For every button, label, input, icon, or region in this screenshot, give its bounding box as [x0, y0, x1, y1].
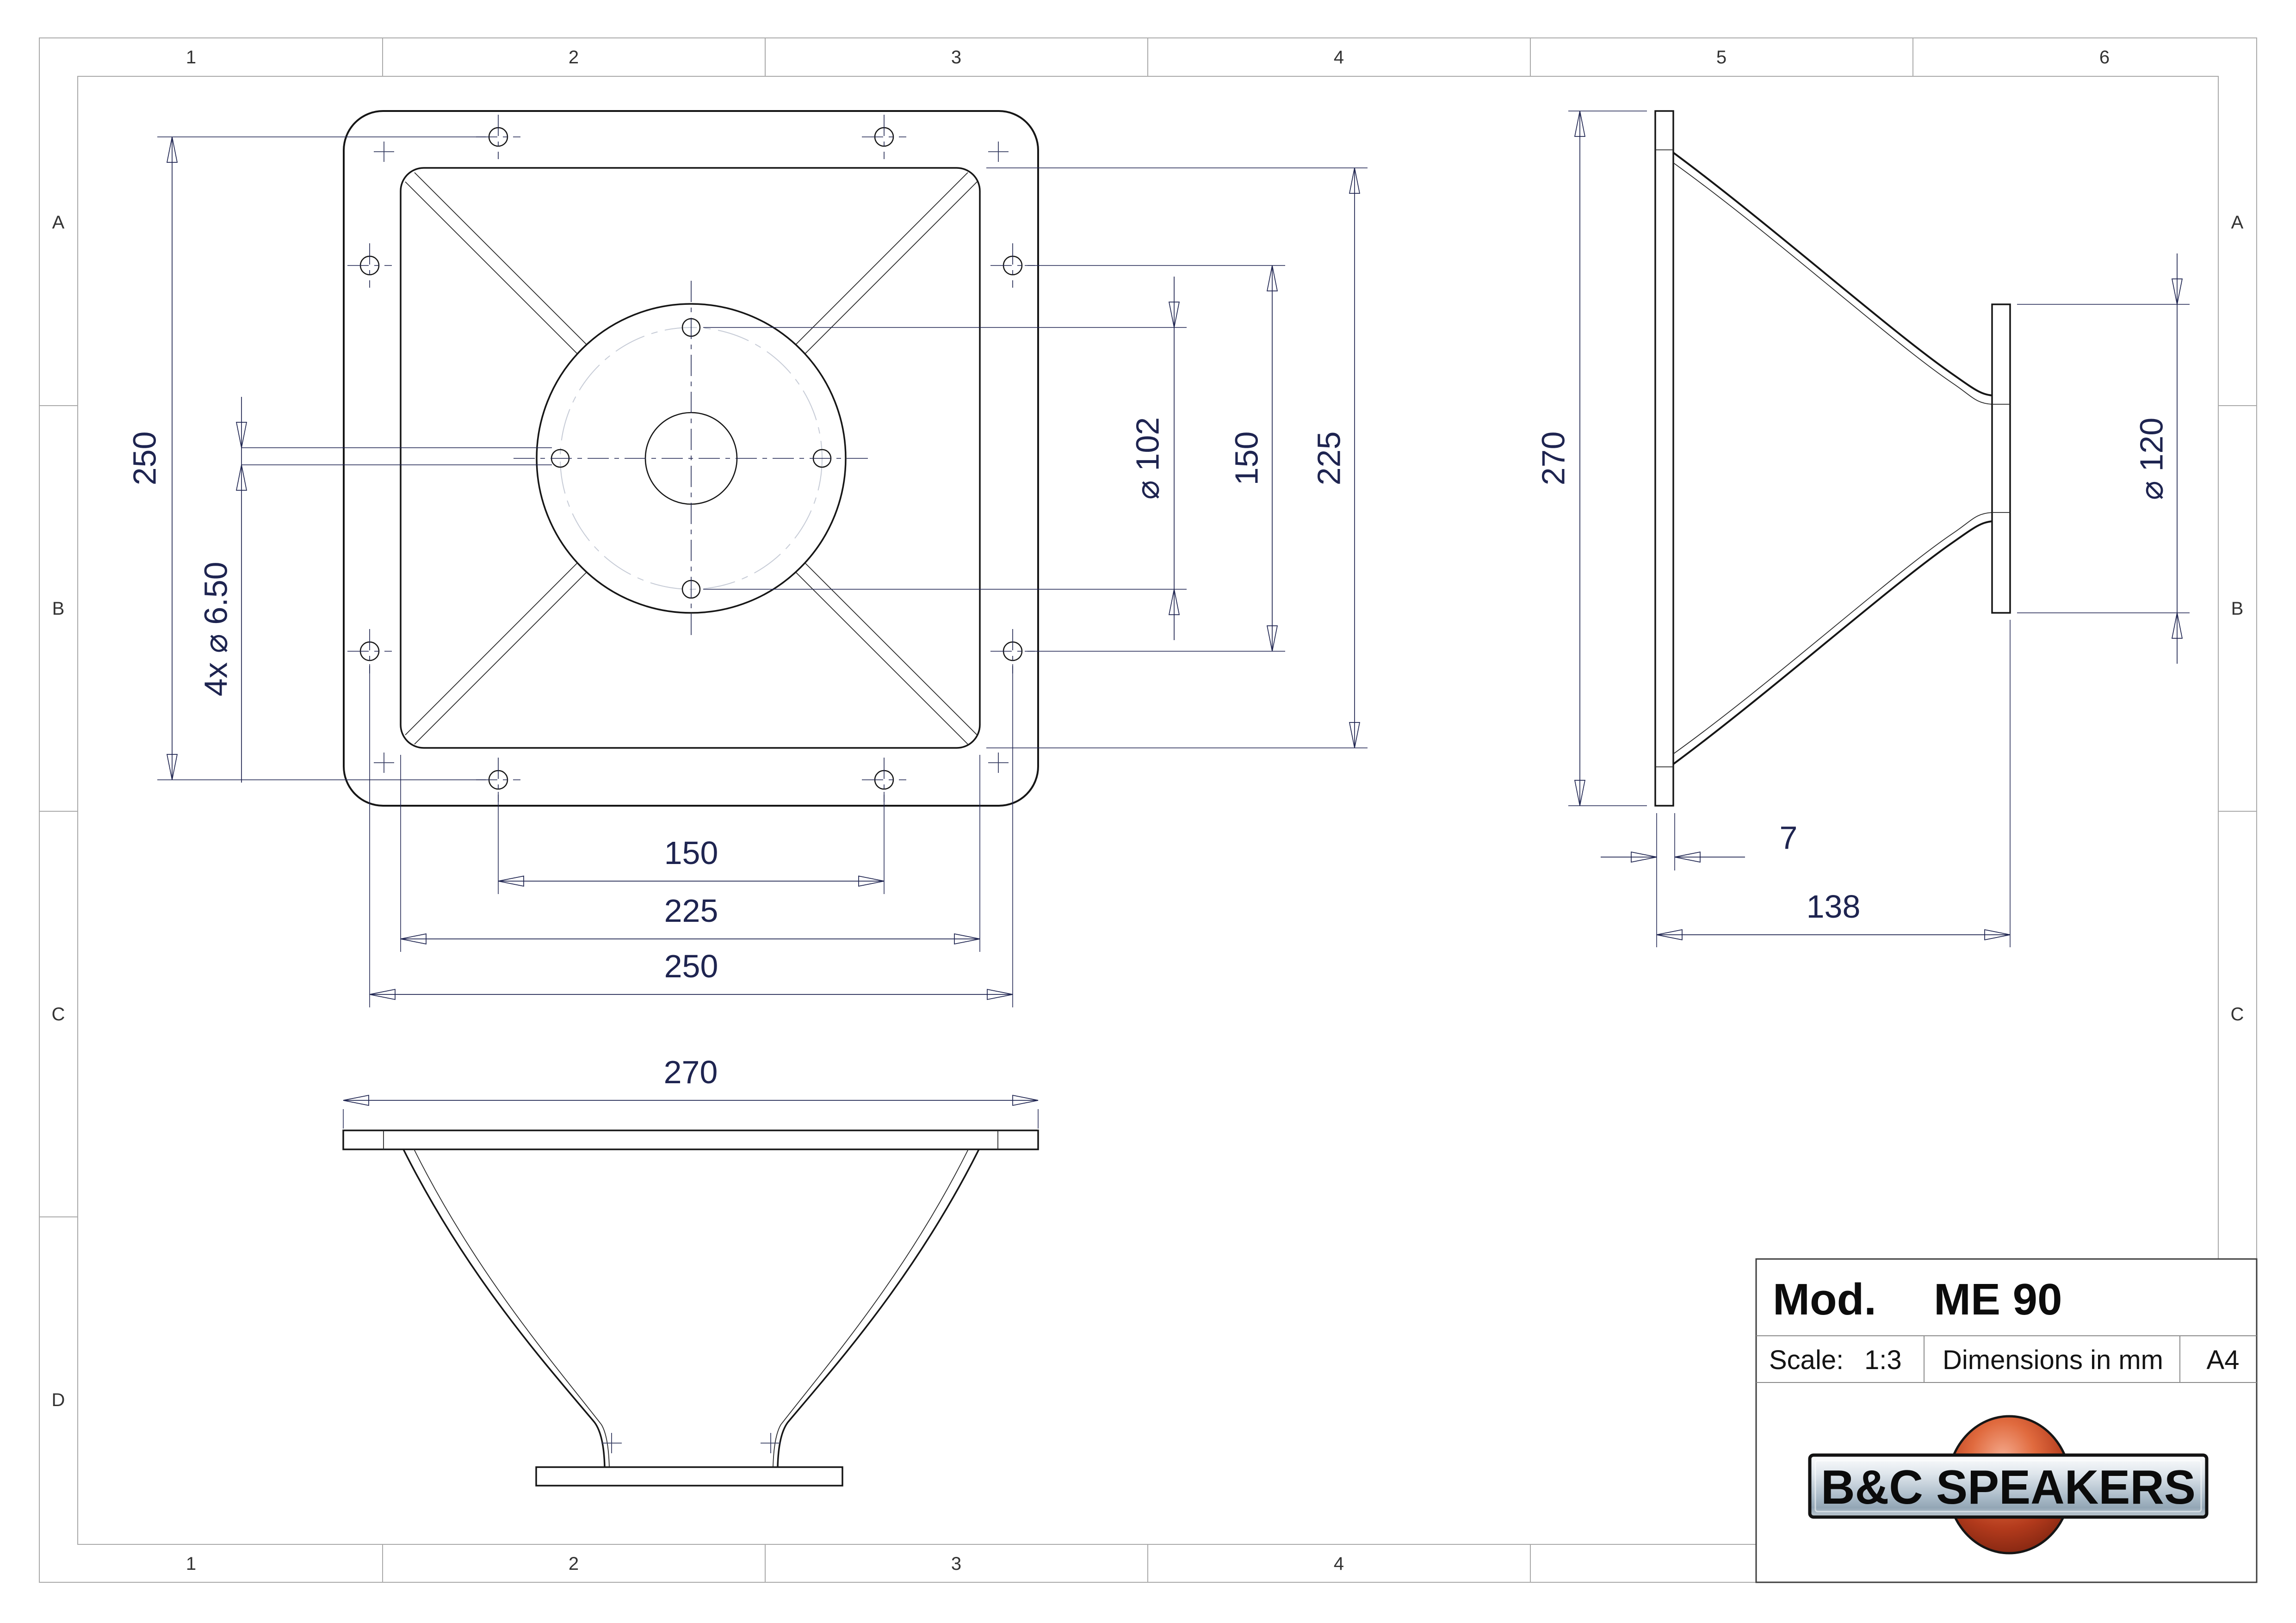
- side-throat-flange: [1992, 304, 2010, 613]
- bottom-bell-outer: [403, 1149, 979, 1467]
- side-dim-depth: 138: [1807, 889, 1861, 925]
- bottom-throat-flange: [536, 1467, 842, 1486]
- grid-col-label-2-bottom: 2: [569, 1554, 579, 1574]
- side-mouth-flange: [1655, 111, 1673, 806]
- title-scale-label: Scale:: [1769, 1345, 1844, 1375]
- bottom-dim-width: 270: [664, 1054, 718, 1090]
- bottom-view: 270: [343, 1054, 1038, 1486]
- logo-wordmark: B&C SPEAKERS: [1821, 1461, 2196, 1514]
- side-view: 270 ⌀ 120 7 138: [1535, 111, 2190, 947]
- grid-row-label-c-right: C: [2231, 1004, 2244, 1024]
- grid-col-label-3-bottom: 3: [951, 1554, 961, 1574]
- grid-row-label-b-right: B: [2231, 599, 2244, 619]
- side-dim-height: 270: [1535, 432, 1571, 486]
- side-dim-flange-thickness: 7: [1780, 820, 1798, 856]
- title-sheet-size: A4: [2207, 1345, 2240, 1375]
- front-dim-bottom-hole-pair: 150: [664, 835, 718, 871]
- grid-col-label-3-top: 3: [951, 47, 961, 68]
- bottom-mouth-flange: [343, 1130, 1038, 1149]
- grid-row-label-c-left: C: [52, 1004, 65, 1024]
- grid-col-label-1-top: 1: [186, 47, 196, 68]
- front-view: 250 4x ⌀ 6.50 ⌀ 102 150 225 150 225 250: [126, 111, 1368, 1007]
- side-bell-inner: [1673, 163, 1992, 754]
- grid-row-label-a-left: A: [52, 212, 65, 233]
- top-band-dividers: [383, 38, 1913, 76]
- front-dim-bolt-circle: ⌀ 102: [1129, 417, 1165, 500]
- grid-row-label-a-right: A: [2231, 212, 2244, 233]
- grid-col-label-2-top: 2: [569, 47, 579, 68]
- front-centerlines: [514, 281, 869, 636]
- bottom-flange-corner-ticks: [384, 1130, 998, 1149]
- left-band-dividers: [39, 406, 78, 1217]
- grid-row-label-d-left: D: [52, 1390, 65, 1410]
- side-throat-ticks: [1992, 404, 2010, 512]
- front-inner-panel: [401, 168, 980, 748]
- side-flange-corner-ticks: [1655, 150, 1673, 767]
- title-scale-value: 1:3: [1864, 1345, 1902, 1375]
- front-dim-hole-rows: 250: [126, 432, 162, 486]
- bottom-tooling-marks: [601, 1433, 781, 1453]
- grid-row-label-b-left: B: [52, 599, 65, 619]
- grid-col-label-4-top: 4: [1334, 47, 1344, 68]
- grid-col-label-1-bottom: 1: [186, 1554, 196, 1574]
- title-model-label: Mod.: [1773, 1275, 1876, 1324]
- side-bell-outer: [1673, 153, 1992, 764]
- drawing-sheet: 1 2 3 4 5 6 1 2 3 4 A B C D A B C: [0, 0, 2296, 1623]
- front-dim-bottom-hole-cols: 250: [664, 948, 718, 984]
- front-dim-side-holes: 150: [1228, 432, 1264, 486]
- grid-col-label-4-bottom: 4: [1334, 1554, 1344, 1574]
- front-dim-hole-callout: 4x ⌀ 6.50: [198, 562, 234, 696]
- side-dim-throat-flange: ⌀ 120: [2133, 418, 2169, 500]
- title-model-value: ME 90: [1934, 1275, 2062, 1324]
- front-dim-inner-square: 225: [1311, 432, 1347, 486]
- front-dim-bottom-inner-square: 225: [664, 893, 718, 929]
- bottom-bell-inner: [414, 1149, 968, 1467]
- grid-col-label-6-top: 6: [2099, 47, 2110, 68]
- title-units-note: Dimensions in mm: [1943, 1345, 2163, 1375]
- grid-col-label-5-top: 5: [1716, 47, 1727, 68]
- title-block: Mod. ME 90 Scale: 1:3 Dimensions in mm A…: [1756, 1259, 2257, 1582]
